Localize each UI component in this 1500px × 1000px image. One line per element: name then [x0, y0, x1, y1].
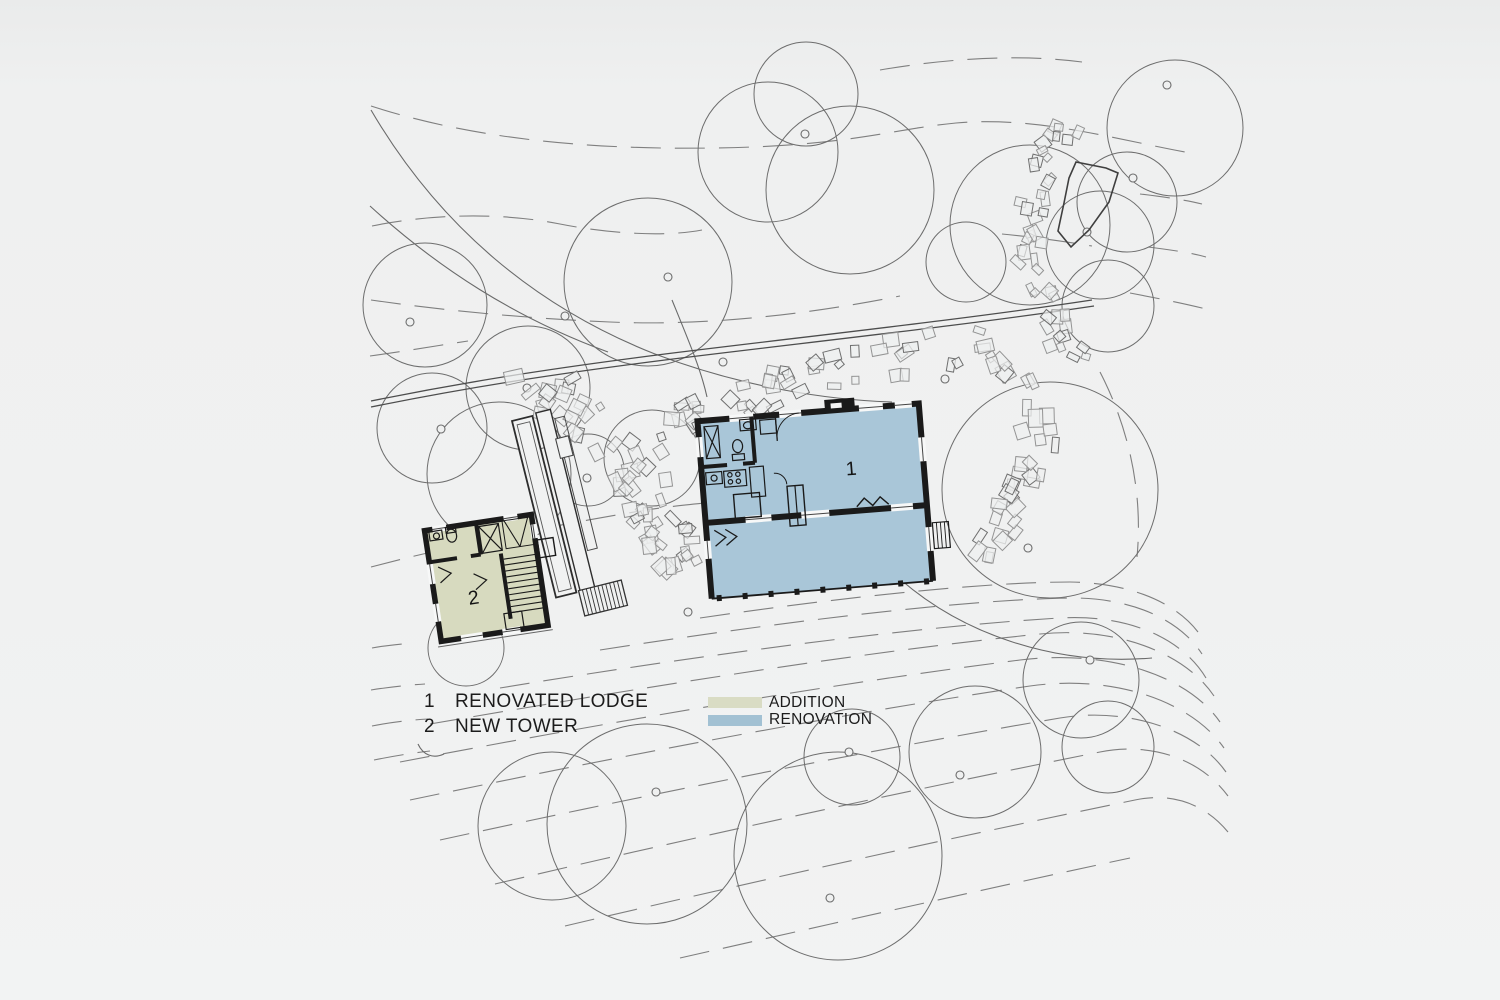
- building-1-label: 1: [845, 458, 858, 481]
- legend-swatch-list: ADDITION RENOVATION: [708, 694, 872, 729]
- renovation-color-swatch: [708, 715, 762, 726]
- legend-swatch-renovation: RENOVATION: [708, 712, 872, 730]
- legend-item-renovated-lodge: 1RENOVATED LODGE: [424, 689, 648, 714]
- legend-key-list: 1RENOVATED LODGE 2NEW TOWER: [424, 689, 648, 739]
- site-road: [371, 300, 1094, 407]
- site-plan-drawing: 1: [0, 0, 1500, 1000]
- legend-item-label: RENOVATED LODGE: [455, 691, 648, 712]
- site-plan-sheet: 1: [0, 0, 1500, 1000]
- legend-item-label: NEW TOWER: [455, 716, 578, 737]
- legend-item-number: 2: [424, 714, 455, 739]
- legend-swatch-label: RENOVATION: [769, 711, 872, 729]
- legend-item-number: 1: [424, 689, 455, 714]
- legend-swatch-addition: ADDITION: [708, 694, 872, 712]
- legend-swatch-label: ADDITION: [769, 694, 845, 712]
- building-1-plan: 1: [697, 391, 953, 599]
- legend-item-new-tower: 2NEW TOWER: [424, 714, 648, 739]
- addition-color-swatch: [708, 697, 762, 708]
- building-1-footprint: [697, 403, 933, 598]
